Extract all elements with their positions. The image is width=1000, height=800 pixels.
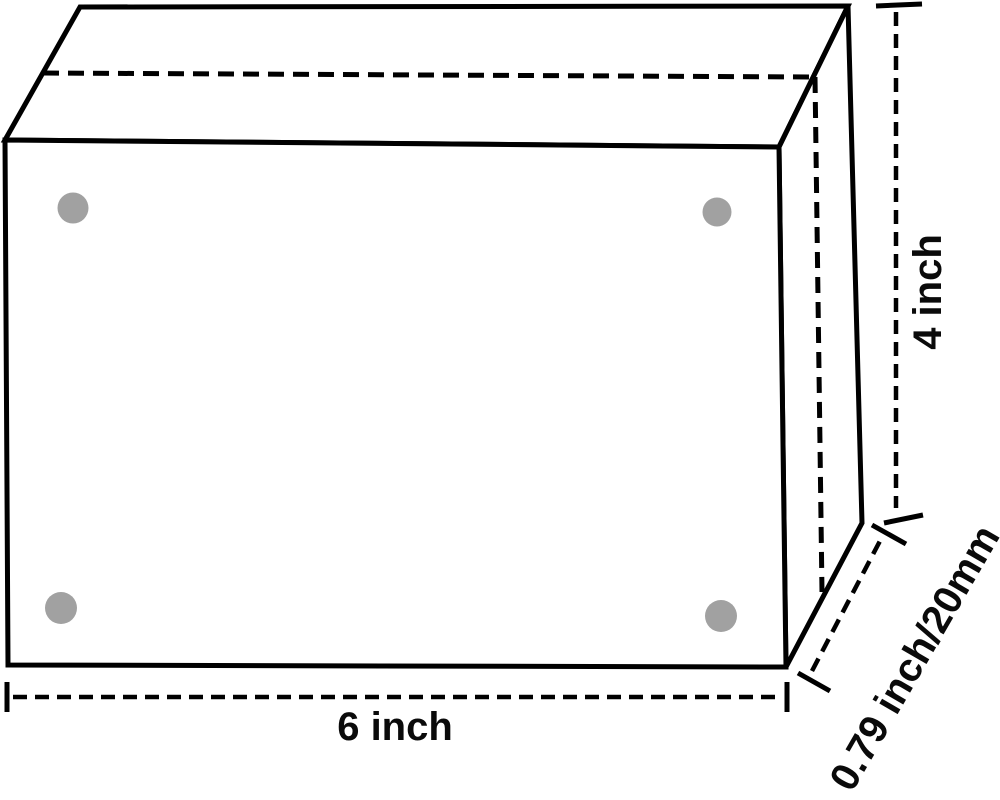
depth-dimension-label: 0.79 inch/20mm (821, 518, 1000, 798)
box-outline (5, 6, 862, 667)
box-front-face (5, 140, 786, 667)
height-dimension-bottom-tick (884, 515, 923, 523)
depth-dimension-far-tick (872, 525, 906, 544)
corner-dot-bottom-left (45, 592, 77, 624)
height-dimension: 4 inch (876, 4, 950, 523)
corner-dot-top-left (58, 193, 89, 224)
height-dimension-label: 4 inch (906, 234, 950, 350)
height-dimension-top-tick (876, 4, 922, 6)
box-dimension-diagram: 6 inch 4 inch 0.79 inch/20mm (0, 0, 1000, 800)
width-dimension-label: 6 inch (337, 705, 453, 749)
corner-dot-bottom-right (705, 600, 737, 632)
depth-dimension-near-tick (798, 673, 830, 691)
diagram-canvas: 6 inch 4 inch 0.79 inch/20mm (0, 0, 1000, 800)
width-dimension: 6 inch (7, 682, 787, 749)
corner-dot-top-right (703, 198, 732, 227)
